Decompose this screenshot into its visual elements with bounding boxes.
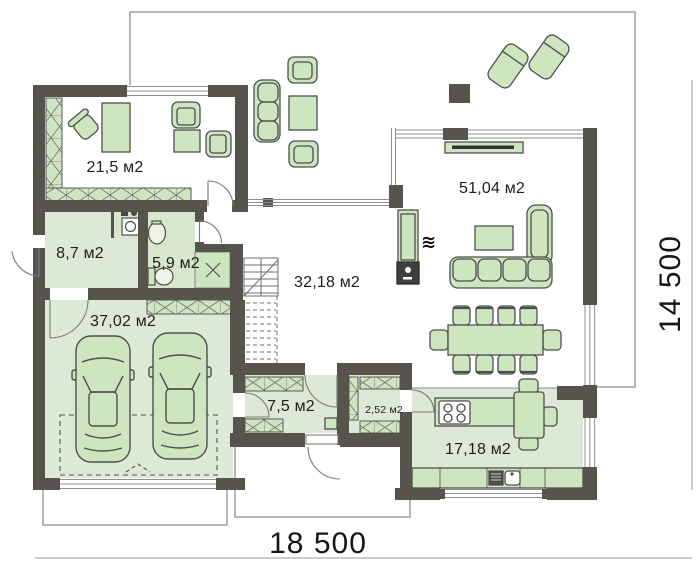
dining-table <box>448 325 543 355</box>
room-label-hall: 32,18 м2 <box>294 274 360 292</box>
room-label-living: 51,04 м2 <box>459 180 525 198</box>
terrace-pillar <box>449 84 470 103</box>
sun-lounger <box>526 32 571 81</box>
dimension-width: 18 500 <box>269 527 367 561</box>
dining-set <box>430 306 561 374</box>
room-label-pantry: 2,52 м2 <box>365 404 403 416</box>
coffee-table <box>475 226 513 250</box>
stove <box>439 401 470 424</box>
island-table <box>514 392 544 438</box>
terrace-furniture <box>254 32 572 167</box>
room-label-bathroom: 5,9 м2 <box>152 255 200 273</box>
room-label-entry: 7,5 м2 <box>267 398 315 416</box>
heat-waves-icon: ≋ <box>421 232 436 253</box>
sun-lounger <box>485 41 530 90</box>
entrance-door-leaf <box>306 435 338 444</box>
sink <box>149 222 166 244</box>
staircase <box>244 258 278 368</box>
garage-door <box>60 480 216 489</box>
study-door <box>208 181 233 206</box>
living-glass-wall <box>392 128 396 185</box>
floor-plan: ≋ <box>0 0 700 575</box>
room-label-utility: 8,7 м2 <box>56 245 104 263</box>
kitchen-back-window <box>440 490 547 498</box>
bathroom-door <box>200 221 222 243</box>
study-furniture <box>67 102 231 157</box>
study-window <box>127 87 208 96</box>
dishwasher <box>489 471 503 485</box>
room-label-garage: 37,02 м2 <box>90 313 156 331</box>
entrance-door <box>308 447 340 479</box>
living-room-furniture <box>397 142 552 288</box>
armchair <box>172 102 200 128</box>
office-chair <box>67 108 101 143</box>
living-top-windows <box>395 130 583 138</box>
washing-machine <box>122 218 139 235</box>
desk <box>102 103 130 152</box>
dining-window <box>585 305 595 385</box>
side-table <box>174 130 200 152</box>
kitchen-side-window <box>585 418 595 467</box>
room-label-study: 21,5 м2 <box>87 159 144 177</box>
outdoor-table <box>289 96 317 130</box>
dimension-depth: 14 500 <box>654 235 688 333</box>
entry-bench <box>325 418 337 429</box>
room-label-kitchen: 17,18 м2 <box>445 441 511 459</box>
island-chair <box>519 379 538 393</box>
